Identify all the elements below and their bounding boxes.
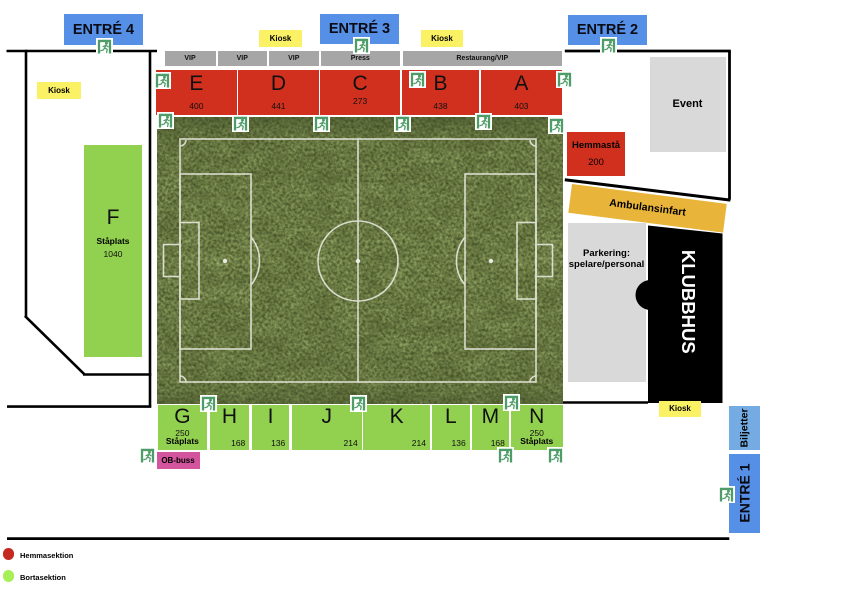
svg-text:KLUBBHUS: KLUBBHUS xyxy=(678,250,699,354)
